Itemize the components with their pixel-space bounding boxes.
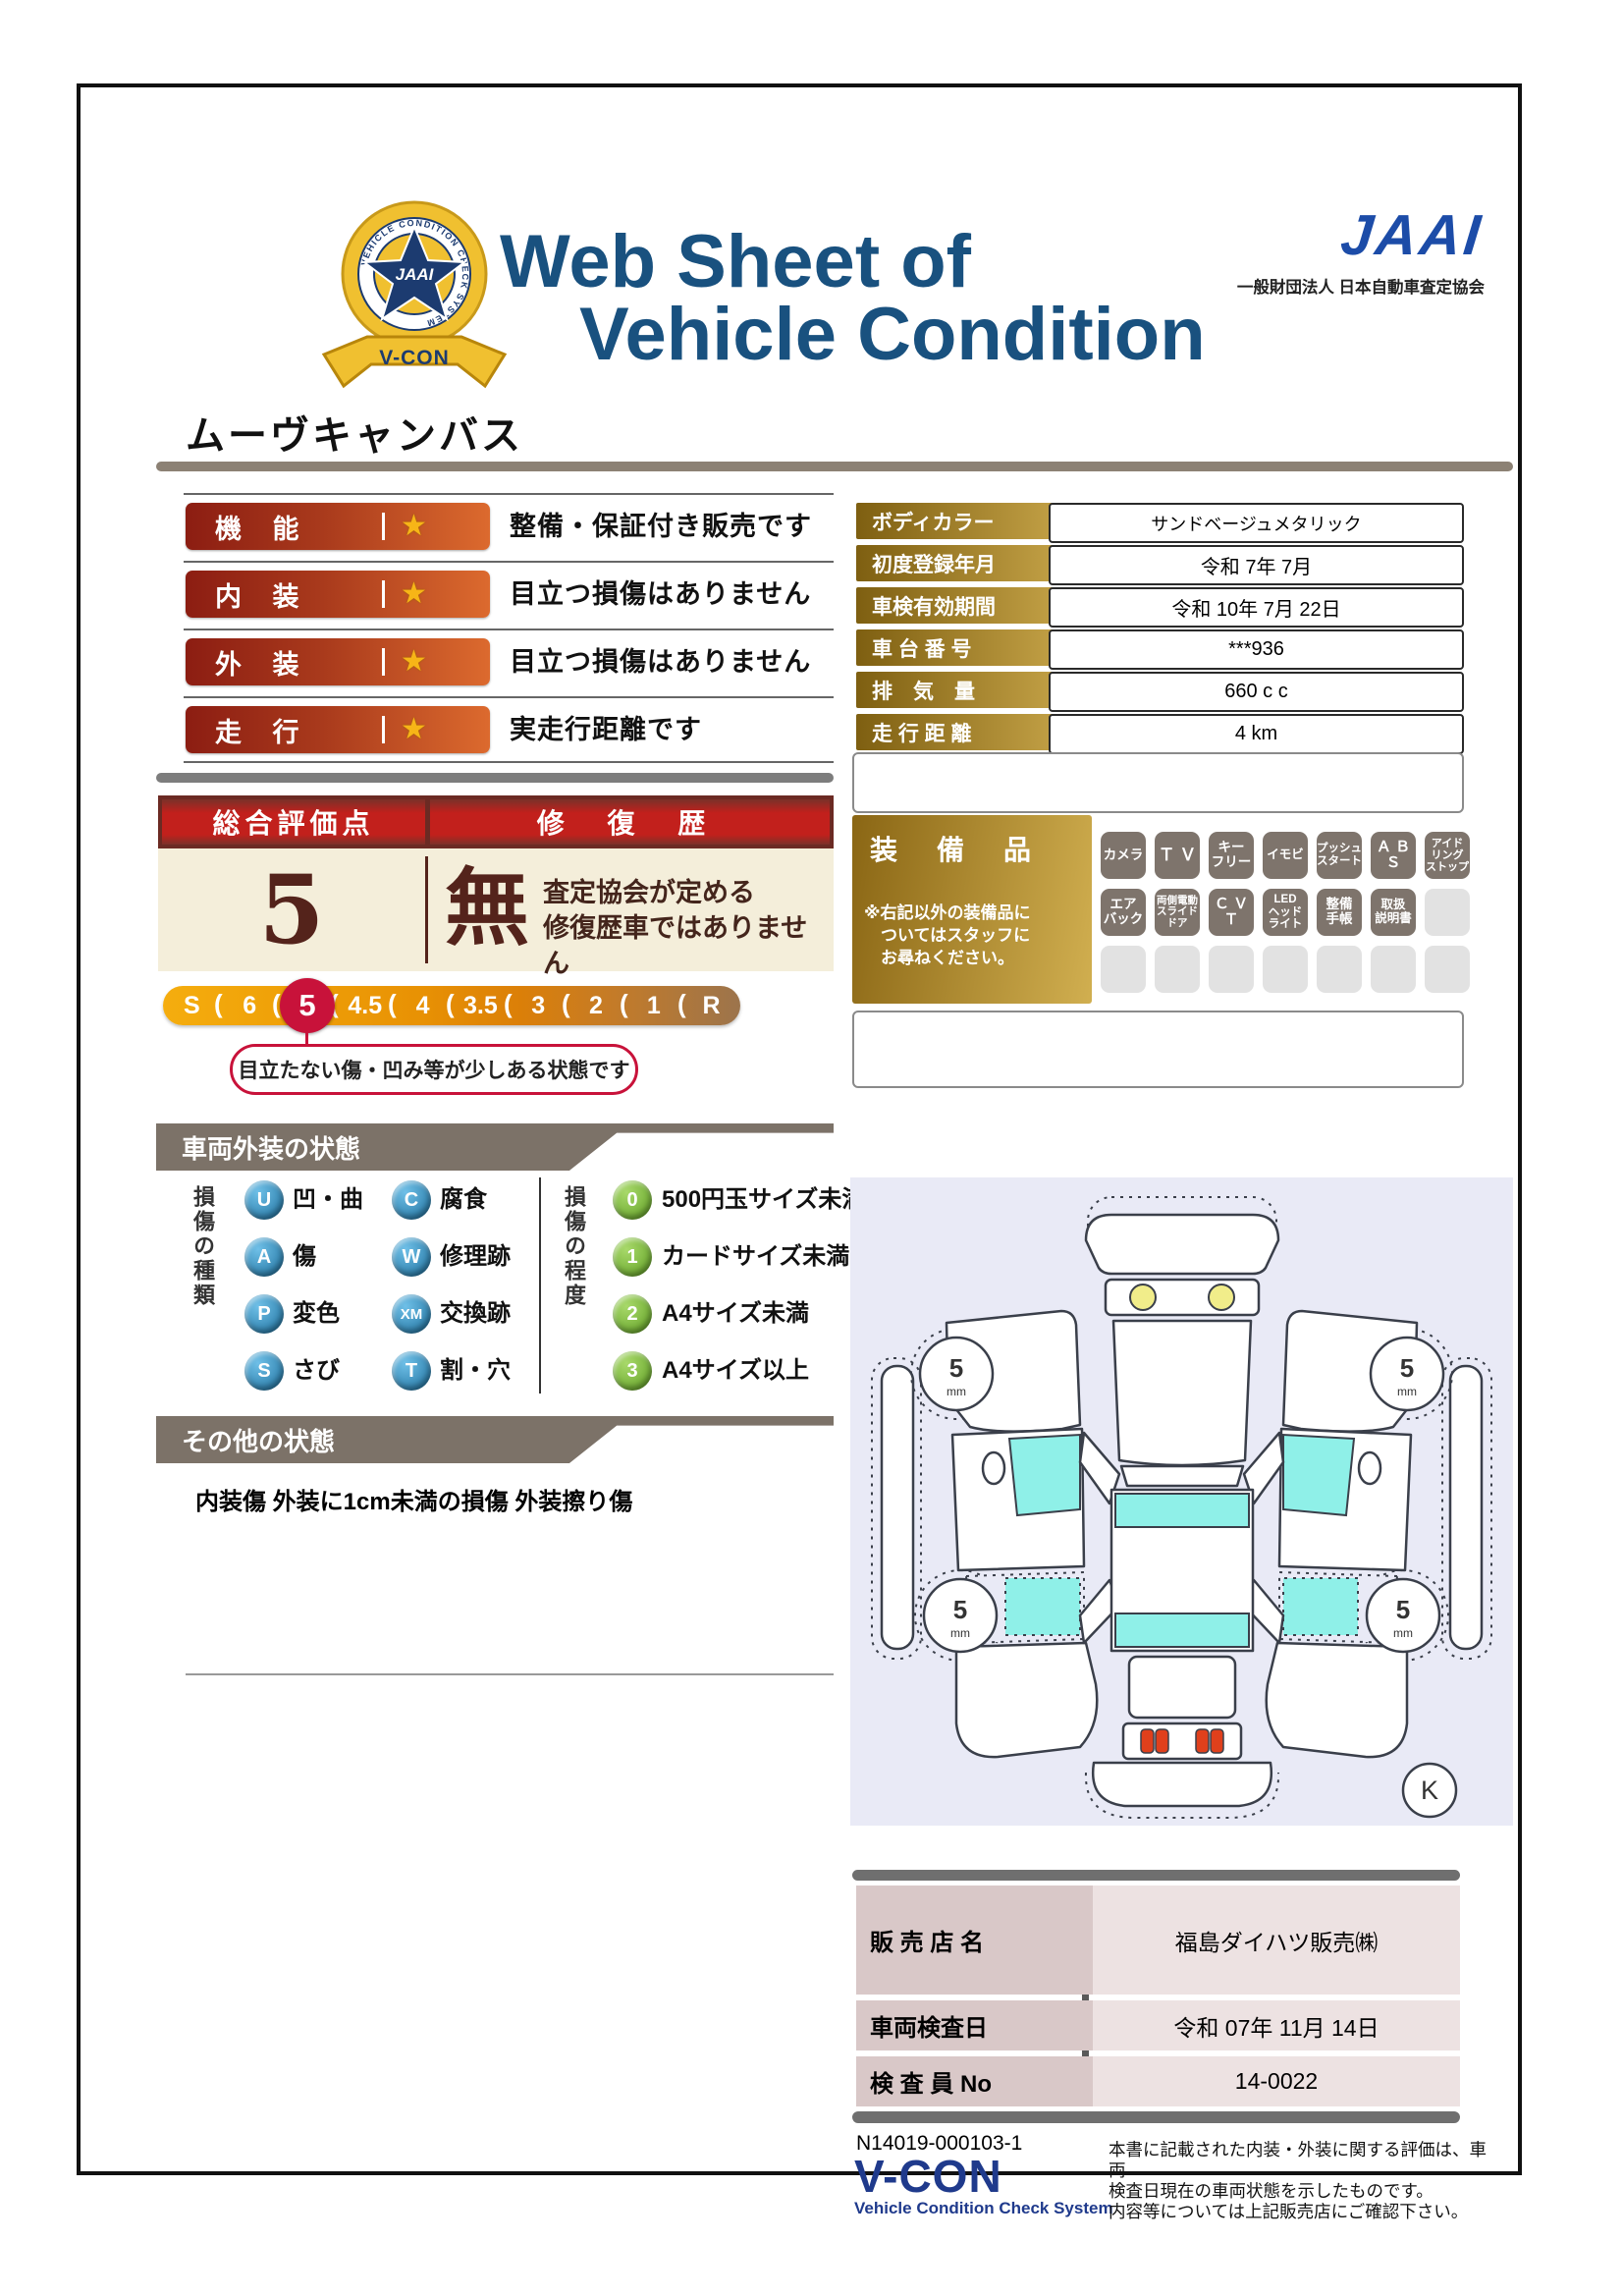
tire-depth-value: 5	[1400, 1353, 1414, 1383]
badge-divider	[382, 648, 385, 676]
scale-grade-2: 2	[568, 986, 625, 1025]
taillight-icon	[1141, 1729, 1154, 1753]
legend-divider	[539, 1177, 541, 1394]
rear-bumper	[1093, 1763, 1271, 1806]
rating-text: 整備・保証付き販売です	[510, 503, 812, 550]
repair-history-value: 無	[445, 866, 529, 951]
star-icon: ★	[401, 512, 427, 541]
damage-degree-2-icon: 2	[613, 1294, 652, 1334]
info-value-mileage: 4 km	[1049, 714, 1464, 754]
scale-grade-3: 3	[510, 986, 568, 1025]
inspector-no-value: 14-0022	[1093, 2056, 1460, 2106]
rating-label: 走 行	[186, 711, 382, 749]
dealer-table-top-bar	[852, 1870, 1460, 1881]
damage-type-P-icon: P	[244, 1294, 284, 1334]
scale-separator: (	[446, 989, 455, 1019]
equipment-badge-empty	[1155, 946, 1200, 993]
highlighted-grade: 5	[280, 978, 335, 1033]
cowl	[1121, 1466, 1243, 1486]
info-label-displacement: 排 気 量	[856, 672, 1060, 708]
bubble-connector	[305, 1031, 308, 1045]
disclaimer-line2: 検査日現在の車両状態を示したものです。	[1109, 2181, 1487, 2202]
info-label-inspection: 車検有効期間	[856, 587, 1060, 624]
damage-degree-0-label: 500円玉サイズ未満	[662, 1180, 865, 1220]
info-label-bodycolor: ボディカラー	[856, 503, 1060, 539]
tire-depth-unit: mm	[1397, 1385, 1417, 1398]
front-bumper	[1086, 1215, 1278, 1274]
rating-badge-interior: 内 装 ★	[186, 571, 490, 618]
info-label-firstreg: 初度登録年月	[856, 545, 1060, 581]
scale-separator: (	[388, 989, 397, 1019]
page-title-line1: Web Sheet of	[500, 225, 971, 300]
other-header-label: その他の状態	[182, 1422, 335, 1458]
equipment-badge-servicebook: 整備 手帳	[1317, 889, 1362, 936]
damage-type-XM-label: 交換跡	[440, 1294, 511, 1334]
damage-type-title: 損傷の種類	[187, 1185, 218, 1362]
ratings-separator	[184, 493, 834, 495]
vehicle-name: ムーヴキャンバス	[186, 404, 523, 461]
equipment-badge-keyfree: キー フリー	[1209, 832, 1254, 879]
taillight-icon	[1156, 1729, 1168, 1753]
info-value-chassis: ***936	[1049, 629, 1464, 670]
equipment-badge-airbag: エア バック	[1101, 889, 1146, 936]
tire-depth-value: 5	[949, 1353, 963, 1383]
tire-depth-unit: mm	[950, 1626, 970, 1640]
taillight-icon	[1196, 1729, 1209, 1753]
damage-type-C-icon: C	[392, 1180, 431, 1220]
disclaimer-line1: 本書に記載された内装・外装に関する評価は、車両	[1109, 2140, 1487, 2181]
front-door-window	[1009, 1435, 1080, 1515]
equipment-badge-empty	[1317, 946, 1362, 993]
car-side-right	[1244, 1311, 1491, 1757]
info-label-chassis: 車 台 番 号	[856, 629, 1060, 666]
equipment-badge-cvt: Ｃ Ｖ Ｔ	[1209, 889, 1254, 936]
scale-grade-35: 3.5	[452, 986, 510, 1025]
taillight-icon	[1211, 1729, 1223, 1753]
equipment-badge-powerslidedoor: 両側電動 スライド ドア	[1155, 889, 1200, 936]
damage-degree-title: 損傷の程度	[558, 1185, 589, 1362]
rating-text: 目立つ損傷はありません	[510, 638, 811, 685]
overall-score: 5	[158, 848, 425, 971]
rear-door-window	[1005, 1578, 1080, 1635]
ratings-separator	[184, 561, 834, 563]
car-center	[1086, 1197, 1278, 1818]
ratings-separator	[184, 696, 834, 698]
ratings-separator	[184, 629, 834, 630]
exterior-section-header: 車両外装の状態	[156, 1123, 834, 1171]
summary-repair-title: 修 復 歴	[430, 799, 830, 845]
car-damage-diagram: .ln{fill:#fff;stroke:#3A3F4A;stroke-widt…	[850, 1177, 1513, 1826]
info-value-bodycolor: サンドベージュメタリック	[1049, 503, 1464, 543]
scale-grade-S: S	[163, 986, 221, 1025]
equipment-badge-tv: Ｔ Ｖ	[1155, 832, 1200, 879]
damage-degree-3-label: A4サイズ以上	[662, 1351, 809, 1391]
vcon-emblem: VEHICLE CONDITION CHECK SYSTEM JAAI V-CO…	[316, 195, 513, 407]
equipment-badge-ledheadlight: LED ヘッド ライト	[1263, 889, 1308, 936]
equipment-badge-abs: Ａ Ｂ Ｓ	[1371, 832, 1416, 879]
badge-divider	[382, 716, 385, 743]
repair-desc-line2: 修復歴車ではありません	[543, 910, 834, 981]
tire-depth-value: 5	[1396, 1595, 1410, 1624]
equipment-badge-camera: カメラ	[1101, 832, 1146, 879]
scale-grade-R: R	[682, 986, 740, 1025]
equipment-badge-empty	[1425, 889, 1470, 936]
disclaimer-text: 本書に記載された内装・外装に関する評価は、車両 検査日現在の車両状態を示したもの…	[1109, 2140, 1487, 2222]
tire-depth-unit: mm	[947, 1385, 966, 1398]
rating-label: 外 装	[186, 643, 382, 682]
info-value-inspection: 令和 10年 7月 22日	[1049, 587, 1464, 628]
rear-fender	[956, 1643, 1097, 1757]
ratings-separator	[184, 761, 834, 763]
headlight-left-icon	[1130, 1285, 1156, 1310]
emblem-jaai-text: JAAI	[396, 265, 435, 284]
dealer-name-label: 販 売 店 名	[856, 1886, 1096, 1995]
vcon-logo: V-CON	[854, 2154, 1002, 2199]
scale-grade-4: 4	[394, 986, 452, 1025]
disclaimer-line3: 内容等については上記販売店にご確認下さい。	[1109, 2202, 1487, 2222]
rating-text: 目立つ損傷はありません	[510, 571, 811, 618]
rating-label: 内 装	[186, 575, 382, 614]
damage-type-A-icon: A	[244, 1237, 284, 1277]
equipment-note: ※右記以外の装備品に ついてはスタッフに お尋ねください。	[864, 902, 1031, 969]
headlight-panel	[1106, 1280, 1259, 1315]
tire-depth-value: 5	[953, 1595, 967, 1624]
equipment-badge-immobilizer: イモビ	[1263, 832, 1308, 879]
car-side-left	[872, 1311, 1119, 1757]
summary-divider	[425, 856, 428, 963]
scale-separator: (	[504, 989, 513, 1019]
damage-type-S-label: さび	[293, 1351, 340, 1391]
damage-degree-3-icon: 3	[613, 1351, 652, 1391]
tire-depth-unit: mm	[1393, 1626, 1413, 1640]
rating-badge-exterior: 外 装 ★	[186, 638, 490, 685]
scale-separator: (	[214, 989, 223, 1019]
door-mirror	[983, 1452, 1004, 1484]
windshield-glass	[1115, 1494, 1249, 1527]
emblem-vcon-text: V-CON	[379, 347, 450, 369]
info-value-displacement: 660 c c	[1049, 672, 1464, 712]
inspection-date-label: 車両検査日	[856, 2000, 1096, 2050]
equipment-note-line3: お尋ねください。	[864, 947, 1031, 969]
inspector-no-label: 検 査 員 No	[856, 2056, 1096, 2106]
exterior-header-label: 車両外装の状態	[182, 1129, 360, 1166]
other-condition-text: 内装傷 外装に1cm未満の損傷 外装擦り傷	[195, 1482, 632, 1516]
notes-underline	[186, 1673, 834, 1675]
rocker-panel	[882, 1366, 913, 1649]
equipment-badge-empty	[1263, 946, 1308, 993]
equipment-note-line2: ついてはスタッフに	[864, 924, 1031, 947]
info-value-firstreg: 令和 7年 7月	[1049, 545, 1464, 585]
damage-type-U-icon: U	[244, 1180, 284, 1220]
scale-separator: (	[620, 989, 628, 1019]
equipment-badge-empty	[1209, 946, 1254, 993]
info-label-mileage: 走 行 距 離	[856, 714, 1060, 750]
header-divider	[156, 462, 1513, 471]
other-section-header: その他の状態	[156, 1416, 834, 1463]
damage-type-W-label: 修理跡	[440, 1237, 511, 1277]
badge-divider	[382, 513, 385, 540]
grade-description-bubble: 目立たない傷・凹み等が少しある状態です	[230, 1044, 638, 1095]
damage-type-U-label: 凹・曲	[293, 1180, 363, 1220]
damage-degree-0-icon: 0	[613, 1180, 652, 1220]
hood	[1113, 1321, 1251, 1465]
headlight-right-icon	[1209, 1285, 1234, 1310]
rating-badge-function: 機 能 ★	[186, 503, 490, 550]
damage-degree-2-label: A4サイズ未満	[662, 1294, 809, 1334]
rating-badge-mileage: 走 行 ★	[186, 706, 490, 753]
star-icon: ★	[401, 647, 427, 677]
damage-type-S-icon: S	[244, 1351, 284, 1391]
scale-grade-6: 6	[221, 986, 279, 1025]
damage-type-T-label: 割・穴	[440, 1351, 511, 1391]
section-divider-bar	[156, 773, 834, 783]
condition-sheet: VEHICLE CONDITION CHECK SYSTEM JAAI V-CO…	[77, 83, 1522, 2175]
damage-type-W-icon: W	[392, 1237, 431, 1277]
equipment-panel: 装 備 品 ※右記以外の装備品に ついてはスタッフに お尋ねください。	[852, 815, 1092, 1004]
inspection-date-value: 令和 07年 11月 14日	[1093, 2000, 1460, 2050]
equipment-empty-box	[852, 1011, 1464, 1088]
equipment-title: 装 備 品	[870, 829, 1037, 868]
dealer-table-bottom-bar	[852, 2111, 1460, 2123]
summary-body: 5 無 査定協会が定める 修復歴車ではありません	[158, 848, 834, 971]
kei-class-letter: K	[1421, 1776, 1438, 1805]
summary-score-title: 総合評価点	[162, 799, 425, 845]
equipment-note-line1: ※右記以外の装備品に	[864, 902, 1031, 924]
rating-text: 実走行距離です	[510, 706, 702, 753]
scale-grade-1: 1	[624, 986, 682, 1025]
grade-scale: S 6 4.5 4 3.5 3 2 1 R ( ( ( ( ( ( ( ( (	[163, 986, 740, 1025]
damage-type-P-label: 変色	[293, 1294, 340, 1334]
equipment-badge-empty	[1425, 946, 1470, 993]
info-empty-box	[852, 752, 1464, 813]
scale-separator: (	[677, 989, 686, 1019]
repair-history-desc: 査定協会が定める 修復歴車ではありません	[543, 875, 834, 981]
repair-desc-line1: 査定協会が定める	[543, 875, 834, 910]
summary-header: 総合評価点 修 復 歴	[158, 795, 834, 848]
jaai-organization: 一般財団法人 日本自動車査定協会	[1237, 274, 1485, 298]
damage-type-A-label: 傷	[293, 1237, 316, 1277]
equipment-badge-empty	[1101, 946, 1146, 993]
equipment-badge-manual: 取扱 説明書	[1371, 889, 1416, 936]
jaai-logo: JAAI	[1338, 207, 1486, 264]
rear-glass	[1115, 1613, 1249, 1647]
damage-type-XM-icon: XM	[392, 1294, 431, 1334]
damage-type-C-label: 腐食	[440, 1180, 487, 1220]
vcon-logo-subtitle: Vehicle Condition Check System	[854, 2199, 1113, 2218]
dealer-name-value: 福島ダイハツ販売㈱	[1093, 1886, 1460, 1995]
badge-divider	[382, 580, 385, 608]
equipment-badge-pushstart: プッシュ スタート	[1317, 832, 1362, 879]
tailgate	[1129, 1657, 1235, 1718]
rating-label: 機 能	[186, 508, 382, 546]
equipment-badge-empty	[1371, 946, 1416, 993]
star-icon: ★	[401, 579, 427, 609]
damage-type-T-icon: T	[392, 1351, 431, 1391]
equipment-badge-idlingstop: アイド リング ストップ	[1425, 832, 1470, 879]
damage-degree-1-icon: 1	[613, 1237, 652, 1277]
damage-degree-1-label: カードサイズ未満	[662, 1237, 849, 1277]
scale-separator: (	[562, 989, 570, 1019]
star-icon: ★	[401, 715, 427, 744]
scale-grade-45: 4.5	[336, 986, 394, 1025]
page-title-line2: Vehicle Condition	[579, 298, 1206, 372]
